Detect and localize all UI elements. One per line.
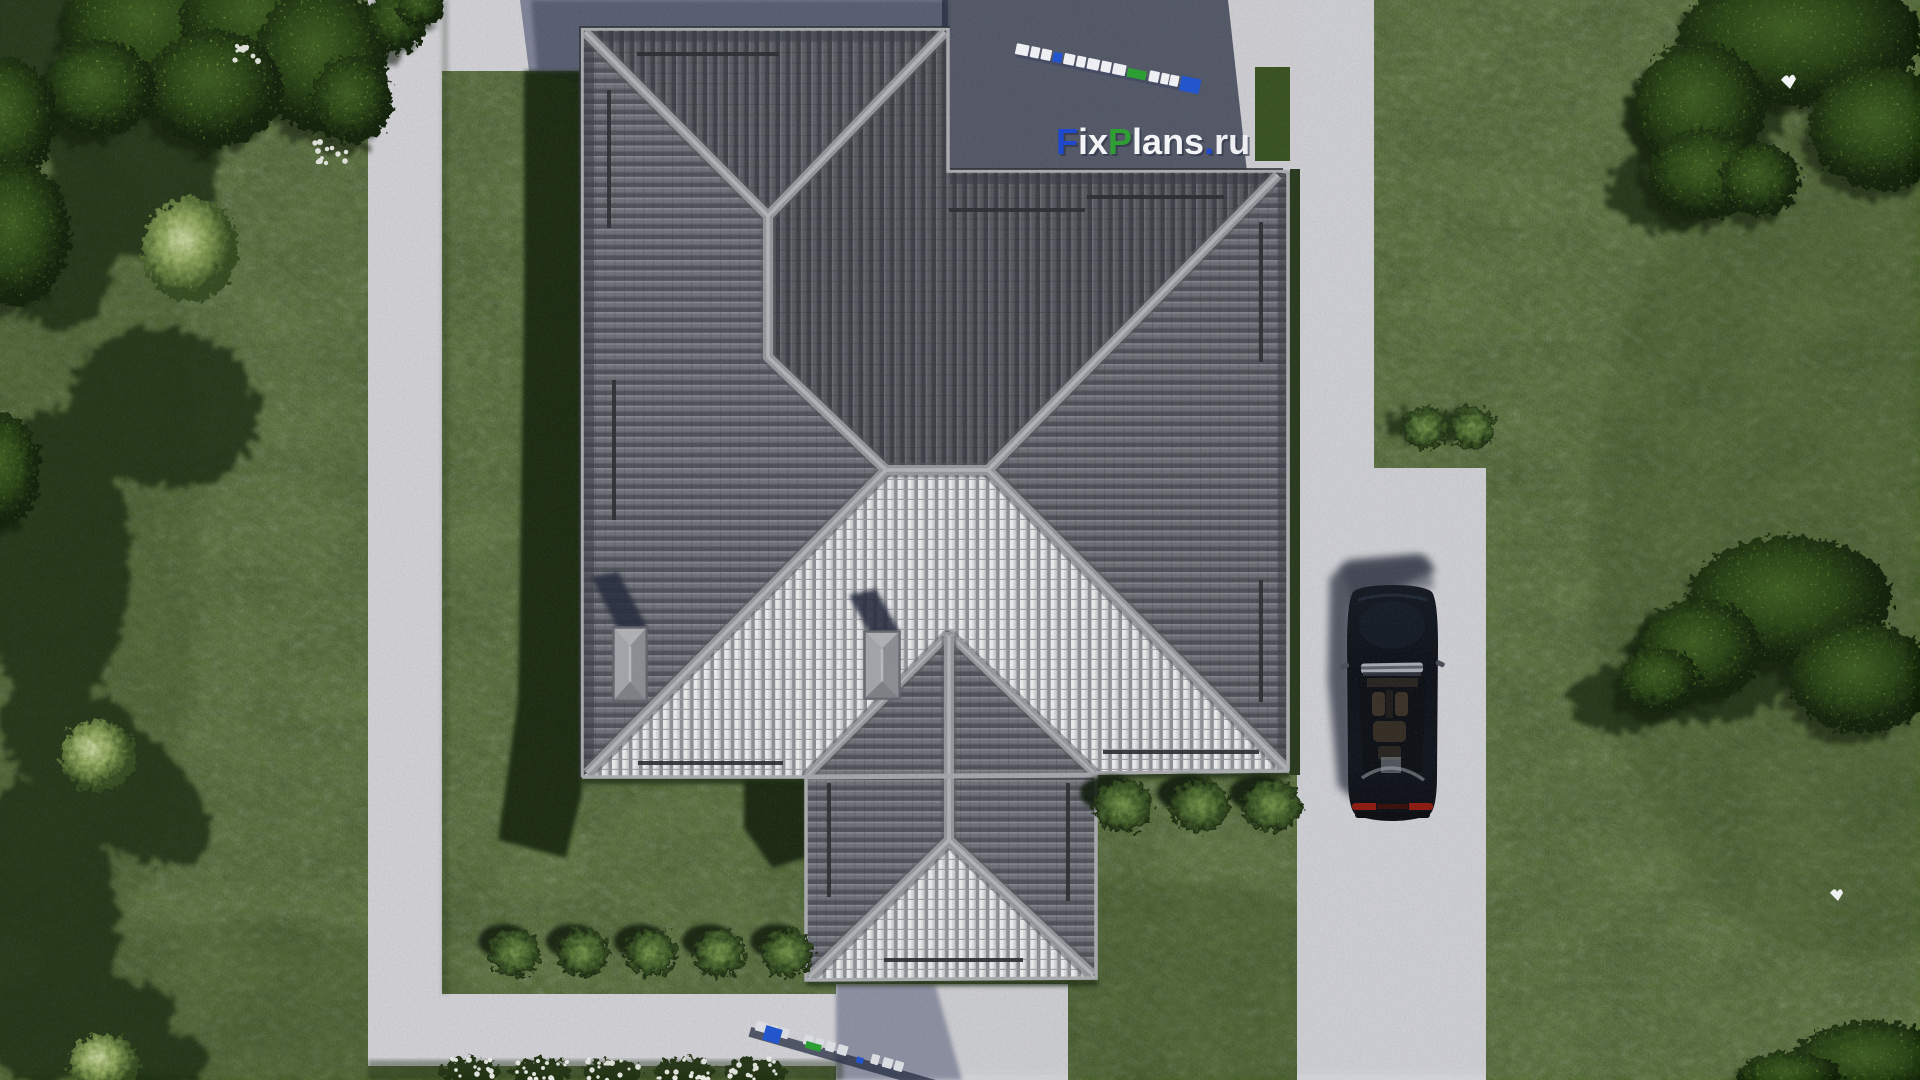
svg-text:FixPlans.ru: FixPlans.ru [1056, 121, 1250, 162]
